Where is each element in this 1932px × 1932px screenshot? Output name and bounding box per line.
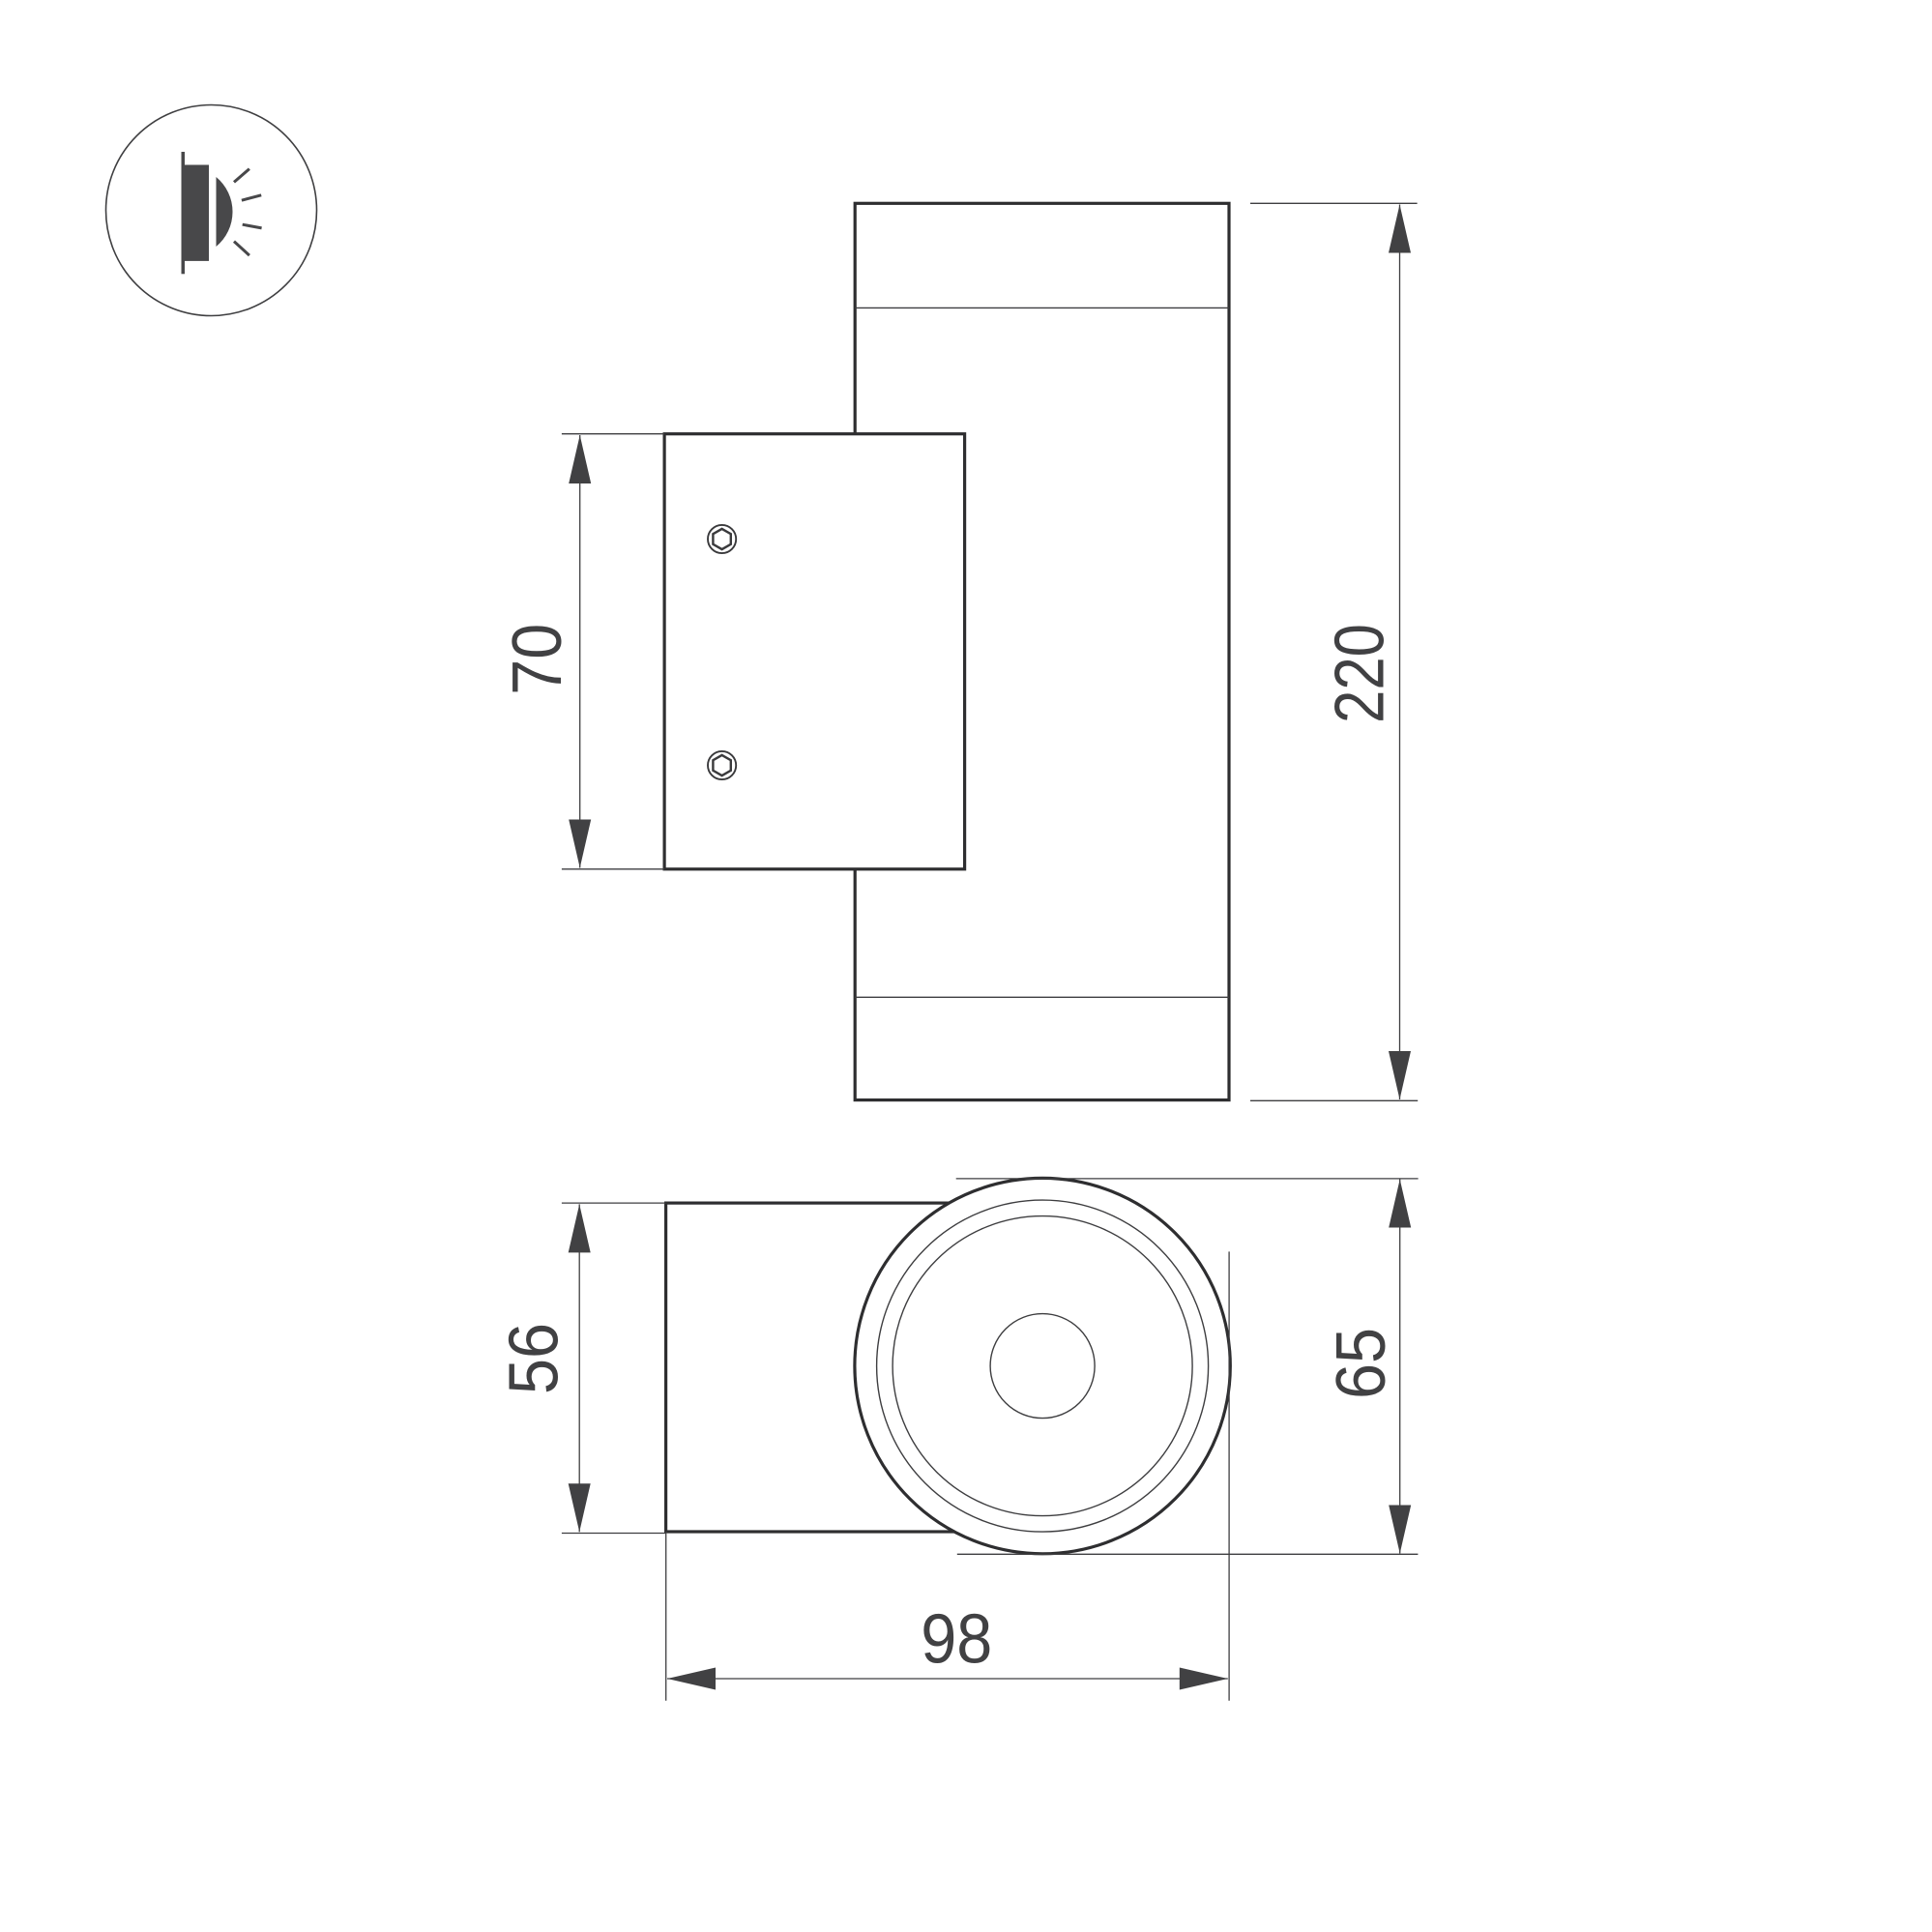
svg-text:56: 56	[496, 1323, 573, 1394]
svg-text:70: 70	[499, 624, 576, 695]
svg-text:98: 98	[921, 1600, 992, 1678]
svg-text:65: 65	[1323, 1328, 1400, 1399]
svg-text:220: 220	[1322, 624, 1399, 723]
